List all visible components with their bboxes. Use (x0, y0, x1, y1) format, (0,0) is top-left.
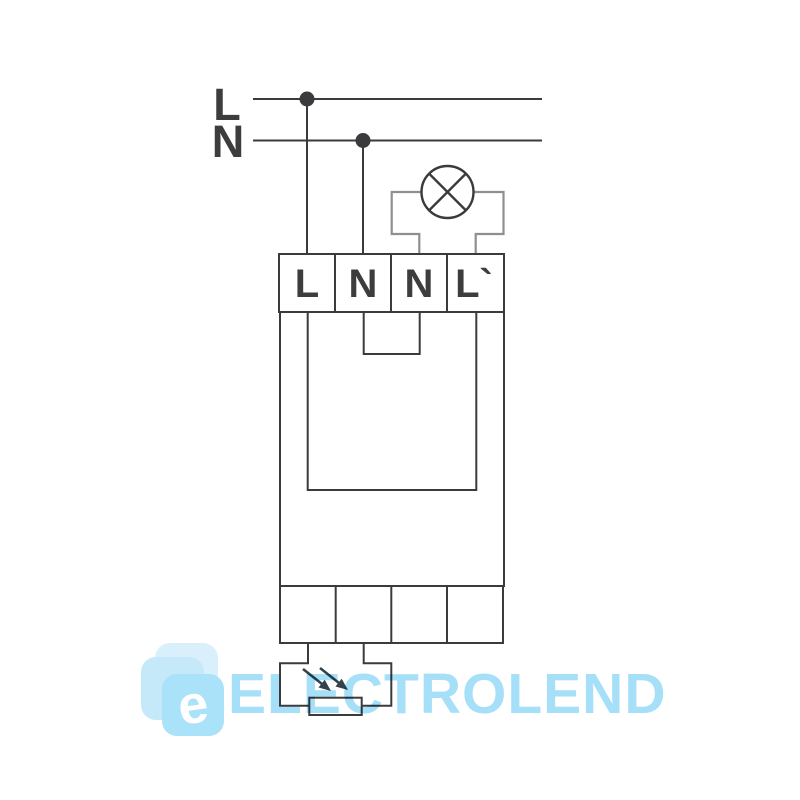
terminal-label-l: L (295, 262, 319, 306)
junction-dot-neutral (356, 133, 371, 148)
supply-lines: L N (212, 79, 542, 254)
photoresistor-icon (303, 668, 362, 715)
photoresistor-wire-loop (280, 643, 391, 706)
resistor-body (309, 698, 361, 715)
device-inner-outline (308, 312, 477, 490)
device-notch (364, 312, 420, 354)
circuit-diagram-canvas: L N L N N L` (0, 0, 800, 800)
light-arrow-1-shaft (303, 669, 322, 684)
terminal-label-n1: N (349, 262, 378, 306)
photoresistor-branch (280, 643, 391, 715)
supply-neutral-label: N (212, 116, 245, 167)
terminal-label-l-out: L` (455, 262, 493, 306)
light-arrow-2-shaft (320, 668, 339, 683)
wiring-diagram: L N L N N L` (0, 0, 800, 800)
junction-dot-line (300, 92, 315, 107)
device-body (280, 312, 504, 586)
lamp-icon (422, 166, 474, 218)
lamp-branch (392, 166, 504, 254)
terminal-block-top: L N N L` (279, 254, 504, 312)
terminal-block-bottom (280, 586, 503, 643)
terminal-label-n2: N (405, 262, 434, 306)
